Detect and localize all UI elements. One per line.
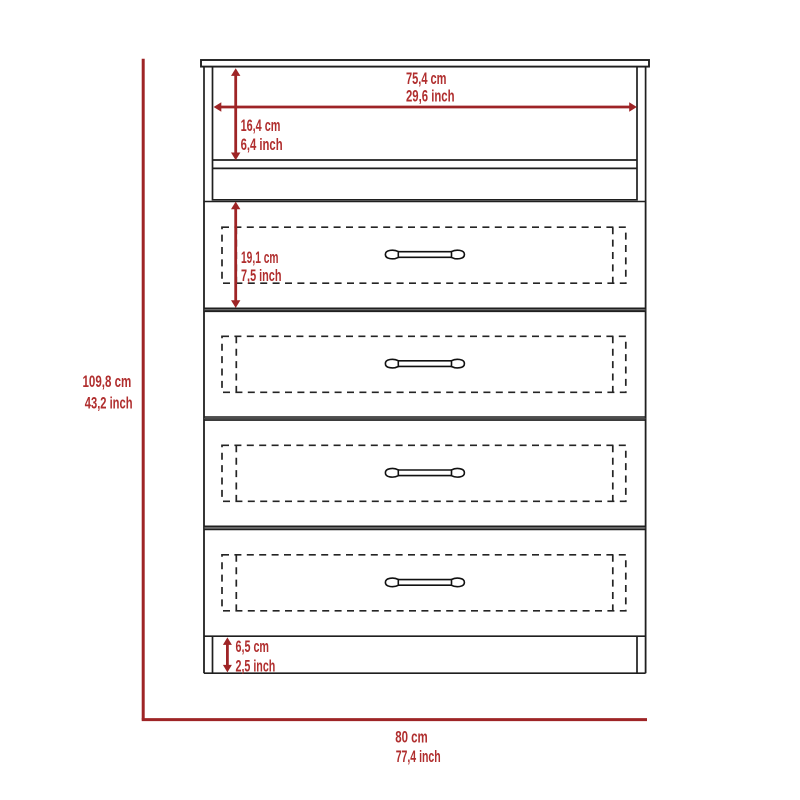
svg-text:19,1 cm: 19,1 cm — [241, 249, 279, 267]
svg-text:6,5 cm: 6,5 cm — [236, 638, 270, 656]
svg-text:75,4 cm: 75,4 cm — [406, 70, 447, 88]
svg-text:77,4 inch: 77,4 inch — [396, 748, 441, 766]
svg-text:7,5 inch: 7,5 inch — [241, 267, 282, 285]
svg-text:2,5 inch: 2,5 inch — [236, 657, 276, 675]
svg-text:43,2 inch: 43,2 inch — [85, 394, 133, 412]
svg-text:16,4 cm: 16,4 cm — [241, 117, 281, 135]
svg-text:109,8 cm: 109,8 cm — [83, 373, 132, 391]
svg-text:29,6 inch: 29,6 inch — [406, 87, 455, 105]
svg-text:80 cm: 80 cm — [395, 729, 428, 747]
svg-text:6,4 inch: 6,4 inch — [241, 136, 283, 154]
